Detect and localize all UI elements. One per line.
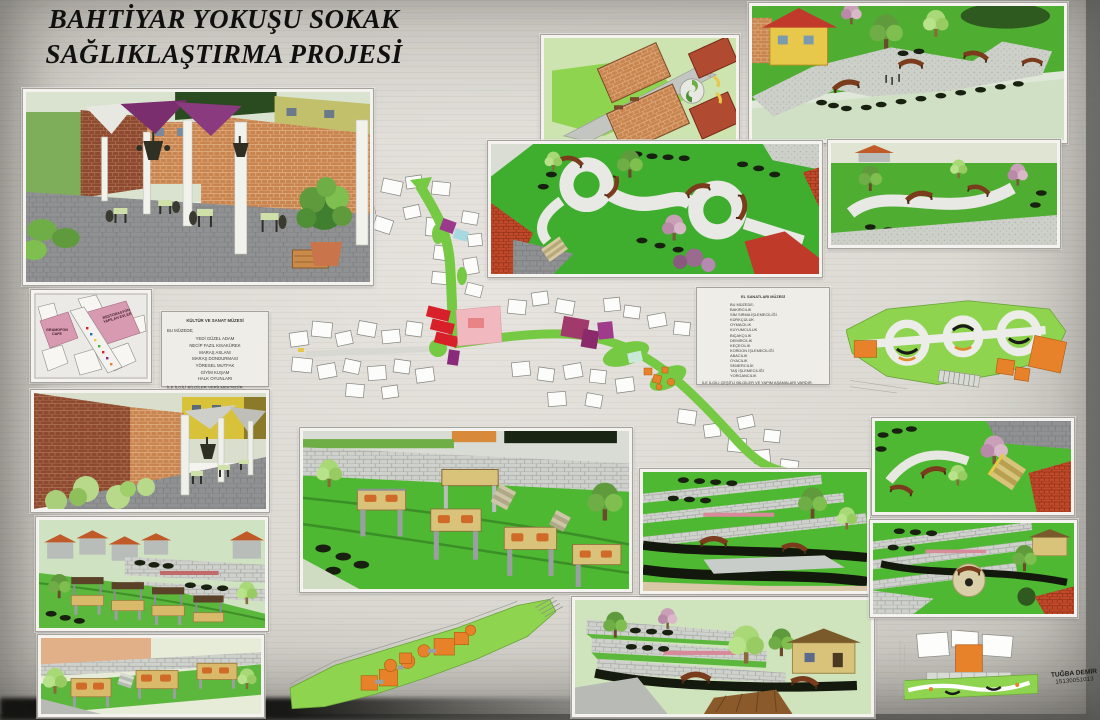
render-terraces-benches-art bbox=[643, 472, 867, 591]
photo-right-edge bbox=[1084, 0, 1100, 720]
render-courtyard-cafe-art bbox=[26, 92, 370, 282]
render-decks-slope bbox=[299, 427, 633, 593]
render-park-ne-art bbox=[752, 6, 1064, 140]
render-brick-terrace-art bbox=[34, 393, 266, 509]
plan-loops-art bbox=[846, 284, 1072, 394]
note-item: MARAŞ DONDURMASI bbox=[165, 356, 265, 363]
render-courtyard-cafe bbox=[22, 88, 374, 286]
note-item: HALK OYUNLARI bbox=[165, 376, 265, 383]
render-terraces-benches bbox=[639, 468, 871, 595]
note-outro: İLE İLGİLİ ÇEŞİTLİ BİLGİLER VE YAPIM AŞA… bbox=[702, 380, 826, 385]
render-park-stairs-art bbox=[875, 421, 1071, 512]
note-intro: BU MÜZEDE; bbox=[167, 328, 265, 335]
project-title-line2: SAĞLIKLAŞTIRMA PROJESİ bbox=[38, 37, 410, 72]
note-item: YEDİ GÜZEL ADAM bbox=[165, 336, 265, 343]
note-title: KÜLTÜR VE SANAT MÜZESİ bbox=[165, 318, 265, 325]
plan-small-art bbox=[896, 630, 1046, 706]
render-terraces-circle bbox=[869, 519, 1078, 618]
render-decks-closeup-art bbox=[41, 638, 261, 714]
photo-of-presentation-board: BAHTİYAR YOKUŞU SOKAK SAĞLIKLAŞTIRMA PRO… bbox=[0, 0, 1100, 720]
render-park-main-art bbox=[491, 144, 819, 274]
note-item: GİYİM KUŞAM bbox=[165, 370, 265, 377]
cafe-label: GRAMOFON CAFE bbox=[41, 328, 73, 337]
render-terrace-garden-art bbox=[575, 600, 871, 714]
plan-slope-decks bbox=[284, 589, 571, 719]
render-decks-slope-art bbox=[303, 431, 629, 589]
plan-square-art bbox=[544, 38, 736, 142]
render-brick-terrace bbox=[30, 389, 270, 513]
plan-small-bottom-right bbox=[896, 630, 1046, 706]
signature-box: TUĞBA DEMİR 15130051013 bbox=[1050, 668, 1100, 702]
project-title-line1: BAHTİYAR YOKUŞU SOKAK bbox=[38, 2, 410, 37]
note-item: YÖRESEL MUTFAK bbox=[165, 363, 265, 370]
note-title: EL SANATLARI MÜZESİ bbox=[700, 294, 826, 299]
culture-museum-note: KÜLTÜR VE SANAT MÜZESİ BU MÜZEDE; YEDİ G… bbox=[161, 311, 269, 387]
orange-building bbox=[956, 645, 983, 677]
render-terraces-houses bbox=[35, 516, 269, 632]
render-terraces-houses-art bbox=[39, 520, 265, 628]
project-title-box: BAHTİYAR YOKUŞU SOKAK SAĞLIKLAŞTIRMA PRO… bbox=[38, 2, 410, 74]
plan-square-junction bbox=[540, 34, 740, 146]
render-park-northeast bbox=[748, 2, 1068, 144]
crafts-museum-note: EL SANATLARI MÜZESİ BU MÜZEDE; BAKIRCILI… bbox=[696, 287, 830, 385]
note-item: MARAŞ ASLANI bbox=[165, 350, 265, 357]
plan-slope-art bbox=[284, 589, 571, 719]
render-park-main bbox=[487, 140, 823, 278]
render-terraces-circle-art bbox=[873, 523, 1074, 614]
render-decks-closeup bbox=[37, 634, 265, 718]
render-park-stairs bbox=[871, 417, 1075, 516]
render-garden-right bbox=[827, 139, 1061, 249]
key-plan-restored-houses: RESTORASYON YAPILAN EVLER GRAMOFON CAFE bbox=[30, 289, 152, 383]
render-terrace-garden bbox=[571, 596, 875, 718]
plan-looping-paths bbox=[846, 284, 1072, 394]
note-item: YORGANCILIK bbox=[730, 373, 826, 378]
render-garden-right-art bbox=[831, 143, 1057, 245]
note-item: NECİP FAZIL KISAKÜREK bbox=[165, 343, 265, 350]
